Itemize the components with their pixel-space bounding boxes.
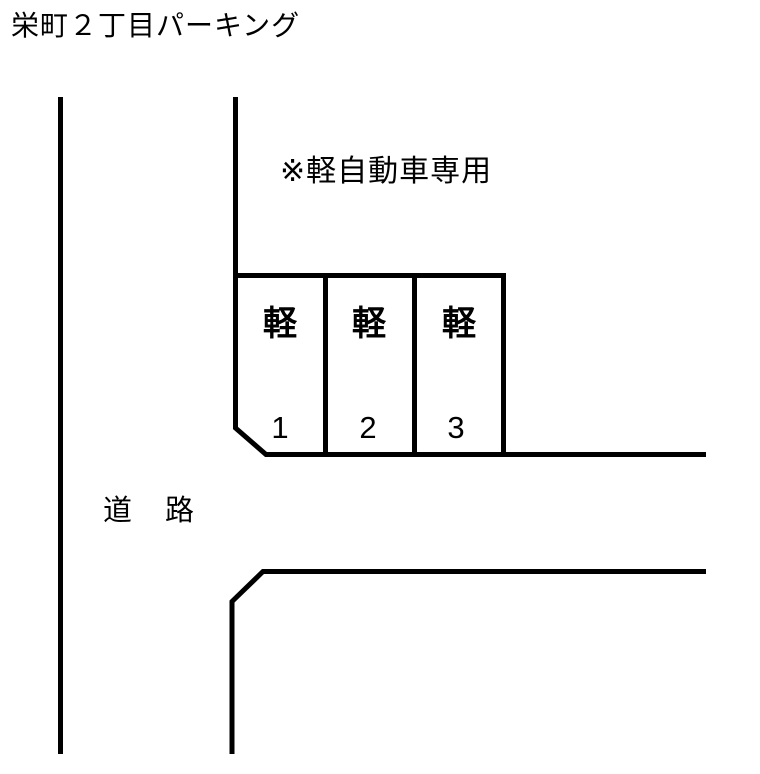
stall-2-type-label: 軽	[352, 307, 386, 341]
page-title: 栄町２丁目パーキング	[11, 12, 300, 40]
light-vehicle-only-note: ※軽自動車専用	[280, 157, 492, 187]
lower-road-edge-line	[232, 572, 706, 755]
stall-3-number: 3	[447, 412, 464, 443]
parking-map-diagram: 栄町２丁目パーキング ※軽自動車専用 道 路 軽 1 軽 2 軽 3	[0, 0, 760, 774]
stall-1-type-label: 軽	[263, 307, 297, 341]
parking-left-chamfer-and-bottom-road-line	[236, 273, 707, 455]
road-label: 道 路	[103, 497, 196, 526]
stall-3-type-label: 軽	[442, 307, 476, 341]
stall-1-number: 1	[271, 412, 288, 443]
diagram-lines	[0, 0, 760, 774]
stall-2-number: 2	[359, 412, 376, 443]
